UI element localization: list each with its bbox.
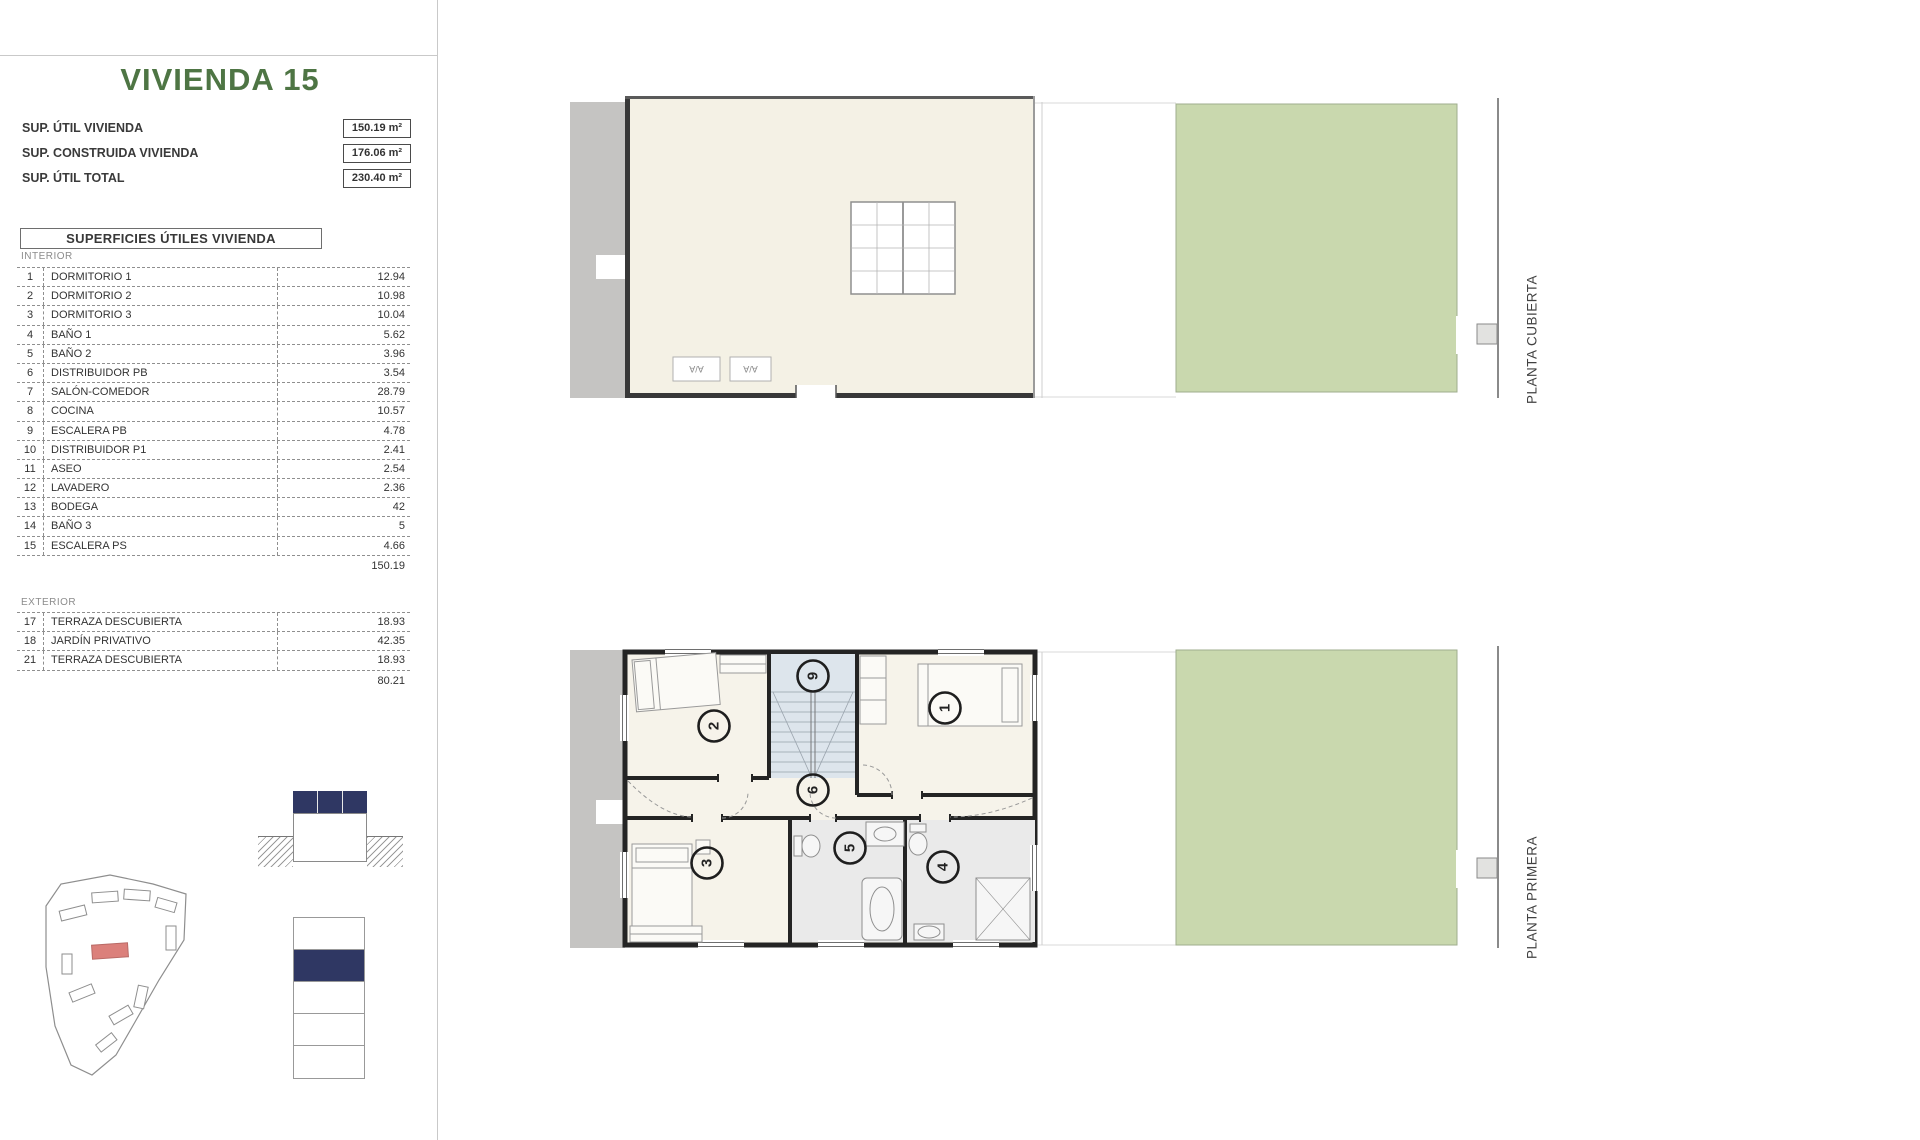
table-row: 17TERRAZA DESCUBIERTA18.93 xyxy=(17,613,410,632)
table-row: 9ESCALERA PB4.78 xyxy=(17,422,410,441)
row-value: 42.35 xyxy=(278,632,410,650)
table-row: 18JARDÍN PRIVATIVO42.35 xyxy=(17,632,410,651)
summary-value: 176.06 m² xyxy=(343,144,411,163)
row-number: 13 xyxy=(17,498,44,516)
row-name: DORMITORIO 3 xyxy=(44,306,278,324)
summary-row: SUP. ÚTIL TOTAL 230.40 m² xyxy=(22,169,411,188)
table-row: 12LAVADERO2.36 xyxy=(17,479,410,498)
svg-text:1: 1 xyxy=(937,704,954,712)
neighbor-strip xyxy=(570,650,625,948)
table-row: 21TERRAZA DESCUBIERTA18.93 xyxy=(17,651,410,670)
page-title: VIVIENDA 15 xyxy=(40,62,400,98)
row-name: LAVADERO xyxy=(44,479,278,497)
garden-top xyxy=(1176,104,1457,392)
row-number: 7 xyxy=(17,383,44,401)
table-row: 8COCINA10.57 xyxy=(17,402,410,421)
row-value: 2.41 xyxy=(278,441,410,459)
ac-unit: A/A xyxy=(730,357,771,381)
row-value: 5.62 xyxy=(278,326,410,344)
table-row: 1DORMITORIO 112.94 xyxy=(17,268,410,287)
row-number: 9 xyxy=(17,422,44,440)
row-name: BODEGA xyxy=(44,498,278,516)
table-row: 4BAÑO 15.62 xyxy=(17,326,410,345)
row-name: TERRAZA DESCUBIERTA xyxy=(44,651,278,669)
row-value: 3.54 xyxy=(278,364,410,382)
stack-cell xyxy=(294,1046,364,1077)
roof-area xyxy=(625,96,1035,398)
panel-divider xyxy=(437,0,438,1140)
row-value: 4.78 xyxy=(278,422,410,440)
row-name: ESCALERA PB xyxy=(44,422,278,440)
row-name: DORMITORIO 1 xyxy=(44,268,278,286)
row-name: ESCALERA PS xyxy=(44,537,278,555)
skylight xyxy=(851,202,955,294)
pillar xyxy=(1477,858,1497,878)
ground-hatch-right xyxy=(367,836,403,867)
row-number: 17 xyxy=(17,613,44,631)
row-value: 12.94 xyxy=(278,268,410,286)
row-name: DISTRIBUIDOR P1 xyxy=(44,441,278,459)
svg-text:9: 9 xyxy=(805,672,822,680)
floor-stack-key xyxy=(293,917,365,1079)
interior-section-label: INTERIOR xyxy=(21,251,73,262)
roof-notch xyxy=(796,385,836,398)
plan-sheet: VIVIENDA 15 SUP. ÚTIL VIVIENDA 150.19 m²… xyxy=(0,0,1920,1140)
row-name: BAÑO 2 xyxy=(44,345,278,363)
svg-text:3: 3 xyxy=(699,859,716,867)
table-row: 11ASEO2.54 xyxy=(17,460,410,479)
row-name: SALÓN-COMEDOR xyxy=(44,383,278,401)
table-row: 3DORMITORIO 310.04 xyxy=(17,306,410,325)
pillar xyxy=(1477,324,1497,344)
row-name: BAÑO 3 xyxy=(44,517,278,535)
row-number: 8 xyxy=(17,402,44,420)
roof-plan: A/A A/A xyxy=(570,90,1510,405)
table-row: 2DORMITORIO 210.98 xyxy=(17,287,410,306)
row-number: 1 xyxy=(17,268,44,286)
summary-label: SUP. ÚTIL VIVIENDA xyxy=(22,121,143,135)
table-row: 10DISTRIBUIDOR P12.41 xyxy=(17,441,410,460)
exterior-rows: 17TERRAZA DESCUBIERTA18.9318JARDÍN PRIVA… xyxy=(17,612,410,671)
row-number: 18 xyxy=(17,632,44,650)
stack-cell xyxy=(294,1014,364,1046)
roof-plan-label: PLANTA CUBIERTA xyxy=(1525,270,1540,410)
row-number: 12 xyxy=(17,479,44,497)
row-value: 2.54 xyxy=(278,460,410,478)
exterior-total: 80.21 xyxy=(17,671,410,689)
row-name: ASEO xyxy=(44,460,278,478)
table-row: 15ESCALERA PS4.66 xyxy=(17,537,410,556)
table-row: 5BAÑO 23.96 xyxy=(17,345,410,364)
row-name: COCINA xyxy=(44,402,278,420)
row-number: 21 xyxy=(17,651,44,669)
row-number: 2 xyxy=(17,287,44,305)
svg-text:6: 6 xyxy=(805,786,822,794)
table-row: 13BODEGA42 xyxy=(17,498,410,517)
table-row: 14BAÑO 35 xyxy=(17,517,410,536)
row-number: 4 xyxy=(17,326,44,344)
row-value: 28.79 xyxy=(278,383,410,401)
row-number: 6 xyxy=(17,364,44,382)
summary-value: 230.40 m² xyxy=(343,169,411,188)
row-name: DORMITORIO 2 xyxy=(44,287,278,305)
interior-total: 150.19 xyxy=(17,556,410,574)
summary-row: SUP. CONSTRUIDA VIVIENDA 176.06 m² xyxy=(22,144,411,163)
row-value: 10.57 xyxy=(278,402,410,420)
row-name: BAÑO 1 xyxy=(44,326,278,344)
row-value: 2.36 xyxy=(278,479,410,497)
summary-row: SUP. ÚTIL VIVIENDA 150.19 m² xyxy=(22,119,411,138)
row-value: 4.66 xyxy=(278,537,410,555)
svg-text:5: 5 xyxy=(842,844,859,852)
row-number: 15 xyxy=(17,537,44,555)
row-value: 10.98 xyxy=(278,287,410,305)
interior-rows: 1DORMITORIO 112.942DORMITORIO 210.983DOR… xyxy=(17,267,410,556)
row-value: 42 xyxy=(278,498,410,516)
row-value: 18.93 xyxy=(278,651,410,669)
site-plan xyxy=(40,868,200,1083)
table-row: 6DISTRIBUIDOR PB3.54 xyxy=(17,364,410,383)
summary-label: SUP. CONSTRUIDA VIVIENDA xyxy=(22,146,198,160)
row-number: 10 xyxy=(17,441,44,459)
section-key xyxy=(258,791,403,871)
first-floor-plan-label: PLANTA PRIMERA xyxy=(1525,828,1540,968)
section-key-body xyxy=(293,813,367,862)
row-number: 11 xyxy=(17,460,44,478)
row-number: 14 xyxy=(17,517,44,535)
row-value: 5 xyxy=(278,517,410,535)
svg-text:2: 2 xyxy=(706,722,723,730)
row-value: 18.93 xyxy=(278,613,410,631)
areas-table-title: SUPERFICIES ÚTILES VIVIENDA xyxy=(20,228,322,249)
ac-label: A/A xyxy=(743,364,758,374)
first-floor-plan: 9 2 1 6 3 5 4 xyxy=(570,640,1510,955)
svg-text:4: 4 xyxy=(935,862,952,871)
interior-table: 1DORMITORIO 112.942DORMITORIO 210.983DOR… xyxy=(17,267,410,574)
stack-cell xyxy=(294,982,364,1014)
neighbor-strip xyxy=(570,102,625,398)
row-number: 3 xyxy=(17,306,44,324)
row-number: 5 xyxy=(17,345,44,363)
stack-cell-highlight xyxy=(294,950,364,982)
ac-unit: A/A xyxy=(673,357,720,381)
row-value: 3.96 xyxy=(278,345,410,363)
exterior-section-label: EXTERIOR xyxy=(21,597,76,608)
ground-hatch-left xyxy=(258,836,293,867)
top-divider xyxy=(0,55,437,56)
garden-bottom xyxy=(1176,650,1457,945)
ac-label: A/A xyxy=(689,364,704,374)
exterior-table: 17TERRAZA DESCUBIERTA18.9318JARDÍN PRIVA… xyxy=(17,612,410,689)
row-name: JARDÍN PRIVATIVO xyxy=(44,632,278,650)
row-name: TERRAZA DESCUBIERTA xyxy=(44,613,278,631)
summary-label: SUP. ÚTIL TOTAL xyxy=(22,171,125,185)
table-row: 7SALÓN-COMEDOR28.79 xyxy=(17,383,410,402)
section-key-roof xyxy=(293,791,367,813)
row-value: 10.04 xyxy=(278,306,410,324)
summary-value: 150.19 m² xyxy=(343,119,411,138)
site-unit-highlight xyxy=(92,943,129,959)
stack-cell xyxy=(294,918,364,950)
row-name: DISTRIBUIDOR PB xyxy=(44,364,278,382)
